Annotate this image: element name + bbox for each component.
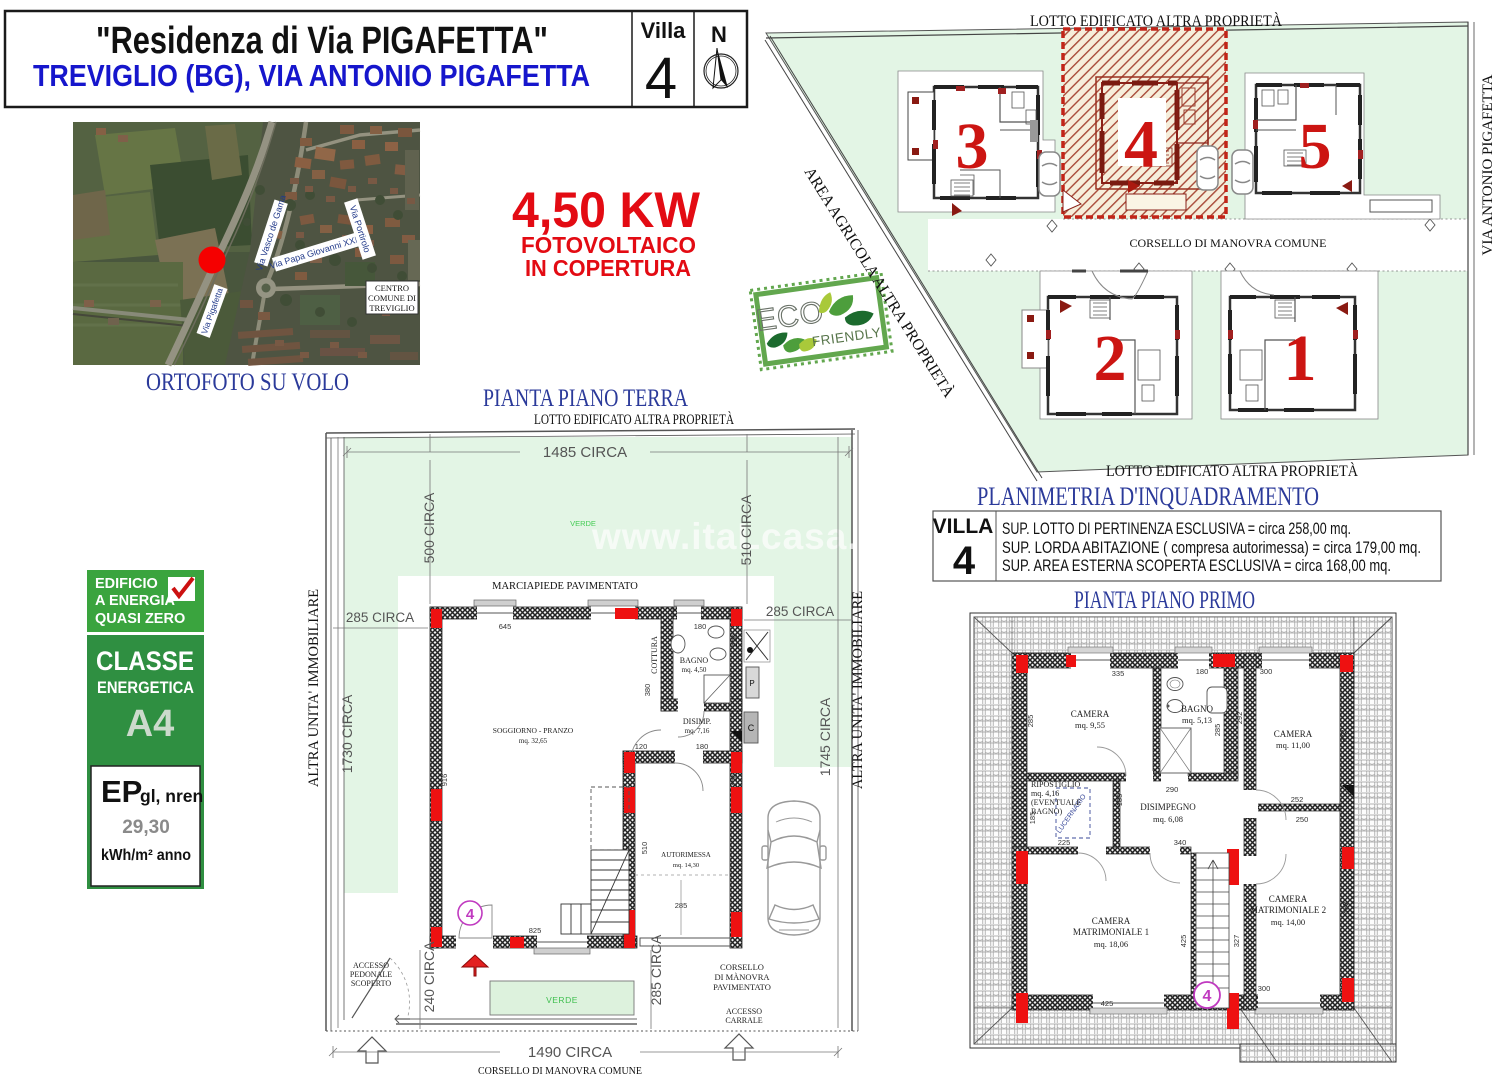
svg-text:300: 300 xyxy=(1258,984,1271,993)
svg-text:CORSELLO DI MANOVRA COMUNE: CORSELLO DI MANOVRA COMUNE xyxy=(478,1065,642,1077)
svg-text:488: 488 xyxy=(1341,902,1350,915)
svg-text:4: 4 xyxy=(466,906,475,923)
svg-text:4: 4 xyxy=(953,539,976,583)
svg-text:VERDE: VERDE xyxy=(546,995,578,1005)
svg-text:BAGNO: BAGNO xyxy=(1181,704,1214,714)
svg-text:5: 5 xyxy=(1299,110,1332,183)
svg-text:CAMERA: CAMERA xyxy=(1269,894,1308,904)
svg-text:MARCIAPIEDE PAVIMENTATO: MARCIAPIEDE PAVIMENTATO xyxy=(492,581,638,592)
svg-text:300: 300 xyxy=(1260,667,1273,676)
svg-text:510 CIRCA: 510 CIRCA xyxy=(738,494,754,565)
svg-text:380: 380 xyxy=(643,684,652,697)
svg-text:500 CIRCA: 500 CIRCA xyxy=(421,492,437,563)
svg-text:TREVIGLIO (BG), VIA ANTONIO PI: TREVIGLIO (BG), VIA ANTONIO PIGAFETTA xyxy=(33,58,590,93)
svg-text:225: 225 xyxy=(1058,838,1071,847)
svg-text:mq. 7,16: mq. 7,16 xyxy=(685,727,710,735)
svg-text:CAMERA: CAMERA xyxy=(1092,916,1131,926)
svg-text:mq. 11,00: mq. 11,00 xyxy=(1276,740,1310,750)
svg-text:1490 CIRCA: 1490 CIRCA xyxy=(528,1044,612,1061)
svg-text:180: 180 xyxy=(696,742,709,751)
svg-text:SUP. LORDA ABITAZIONE ( compre: SUP. LORDA ABITAZIONE ( compresa autorim… xyxy=(1002,538,1421,557)
svg-text:252: 252 xyxy=(1291,795,1304,804)
svg-text:4,50 KW: 4,50 KW xyxy=(512,182,701,238)
svg-text:285 CIRCA: 285 CIRCA xyxy=(346,610,414,625)
svg-text:425: 425 xyxy=(1179,935,1188,948)
svg-text:645: 645 xyxy=(499,622,512,631)
svg-text:IN COPERTURA: IN COPERTURA xyxy=(525,255,691,281)
svg-text:A4: A4 xyxy=(126,703,175,745)
svg-text:PIANTA PIANO TERRA: PIANTA PIANO TERRA xyxy=(483,385,688,412)
svg-text:mq. 9,55: mq. 9,55 xyxy=(1075,720,1105,730)
svg-text:gl, nren: gl, nren xyxy=(140,786,203,806)
svg-text:250: 250 xyxy=(1296,815,1309,824)
svg-text:EDIFICIO: EDIFICIO xyxy=(95,576,158,592)
svg-text:373: 373 xyxy=(1339,730,1348,743)
svg-text:mq. 4,50: mq. 4,50 xyxy=(682,666,707,674)
svg-text:mq. 14,00: mq. 14,00 xyxy=(1271,917,1305,927)
svg-text:MATRIMONIALE 1: MATRIMONIALE 1 xyxy=(1073,927,1149,937)
svg-text:VILLA: VILLA xyxy=(933,515,994,538)
svg-text:EP: EP xyxy=(101,774,142,809)
svg-text:185: 185 xyxy=(1115,794,1124,807)
svg-text:SOGGIORNO - PRANZO: SOGGIORNO - PRANZO xyxy=(493,726,574,735)
svg-text:RIPOSTIGLIO: RIPOSTIGLIO xyxy=(1031,780,1081,789)
svg-text:ACCESSO: ACCESSO xyxy=(353,961,389,970)
svg-text:3: 3 xyxy=(956,110,989,183)
svg-text:CLASSE: CLASSE xyxy=(96,646,194,676)
svg-text:SCOPERTO: SCOPERTO xyxy=(351,979,391,988)
svg-text:285: 285 xyxy=(1026,715,1035,728)
svg-text:1: 1 xyxy=(1284,322,1317,395)
svg-text:1745 CIRCA: 1745 CIRCA xyxy=(817,697,833,776)
svg-text:PAVIMENTATO: PAVIMENTATO xyxy=(713,982,771,992)
svg-text:COMUNE DI: COMUNE DI xyxy=(368,293,416,303)
svg-text:C: C xyxy=(748,723,755,733)
svg-text:4: 4 xyxy=(1203,988,1212,1005)
svg-text:DI MÀNOVRA: DI MÀNOVRA xyxy=(714,972,770,982)
svg-text:Villa: Villa xyxy=(641,18,687,43)
svg-text:ORTOFOTO SU VOLO: ORTOFOTO SU VOLO xyxy=(146,369,349,396)
svg-text:PEDONALE: PEDONALE xyxy=(350,970,392,979)
svg-text:A ENERGIA: A ENERGIA xyxy=(95,593,176,609)
svg-text:kWh/m² anno: kWh/m² anno xyxy=(101,847,191,864)
svg-text:4: 4 xyxy=(645,46,677,111)
svg-text:240 CIRCA: 240 CIRCA xyxy=(421,941,437,1012)
svg-text:120: 120 xyxy=(635,742,648,751)
svg-text:285: 285 xyxy=(1213,724,1222,737)
svg-text:2: 2 xyxy=(1094,322,1127,395)
svg-text:292: 292 xyxy=(1235,712,1244,725)
svg-text:185: 185 xyxy=(1028,812,1037,825)
svg-text:4: 4 xyxy=(1124,106,1158,182)
svg-text:mq. 32,65: mq. 32,65 xyxy=(519,737,548,745)
svg-text:mq. 6,08: mq. 6,08 xyxy=(1153,814,1183,824)
svg-text:LOTTO EDIFICATO ALTRA PROPRIE: LOTTO EDIFICATO ALTRA PROPRIETÀ xyxy=(534,411,734,428)
svg-text:TREVIGLIO: TREVIGLIO xyxy=(369,303,414,313)
svg-text:N: N xyxy=(711,22,727,47)
svg-text:180: 180 xyxy=(694,622,707,631)
svg-text:mq. 4,16: mq. 4,16 xyxy=(1031,789,1059,798)
svg-text:LOTTO EDIFICATO ALTRA PROPRIE: LOTTO EDIFICATO ALTRA PROPRIETÀ xyxy=(1106,461,1358,480)
svg-text:(EVENTUALE: (EVENTUALE xyxy=(1031,798,1081,807)
svg-text:SUP. LOTTO DI PERTINENZA ESCLU: SUP. LOTTO DI PERTINENZA ESCLUSIVA = cir… xyxy=(1002,519,1351,538)
svg-text:327: 327 xyxy=(1232,935,1241,948)
svg-text:29,30: 29,30 xyxy=(122,817,170,838)
svg-text:P: P xyxy=(749,679,754,688)
svg-text:335: 335 xyxy=(1112,669,1125,678)
svg-text:340: 340 xyxy=(1174,838,1187,847)
svg-text:250: 250 xyxy=(730,634,739,647)
svg-text:SUP. AREA ESTERNA SCOPERTA ESC: SUP. AREA ESTERNA SCOPERTA ESCLUSIVA = c… xyxy=(1002,556,1391,575)
svg-text:CAMERA: CAMERA xyxy=(1071,709,1110,719)
svg-text:PLANIMETRIA D'INQUADRAMENTO: PLANIMETRIA D'INQUADRAMENTO xyxy=(977,482,1319,511)
svg-text:PIANTA PIANO PRIMO: PIANTA PIANO PRIMO xyxy=(1074,587,1255,614)
svg-text:LOTTO EDIFICATO ALTRA PROPRIE: LOTTO EDIFICATO ALTRA PROPRIETÀ xyxy=(1030,11,1282,30)
svg-text:AUTORIMESSA: AUTORIMESSA xyxy=(661,851,711,859)
svg-text:ALTRA UNITA' IMMOBILIARE: ALTRA UNITA' IMMOBILIARE xyxy=(850,591,866,789)
svg-text:1730 CIRCA: 1730 CIRCA xyxy=(339,694,355,773)
svg-text:MATRIMONIALE 2: MATRIMONIALE 2 xyxy=(1250,905,1326,915)
svg-text:"Residenza di Via PIGAFETTA": "Residenza di Via PIGAFETTA" xyxy=(96,20,548,62)
svg-text:180: 180 xyxy=(1196,667,1209,676)
svg-text:COTTURA: COTTURA xyxy=(650,636,659,674)
svg-text:VIA ANTONIO PIGAFETTA: VIA ANTONIO PIGAFETTA xyxy=(1480,74,1496,255)
svg-text:825: 825 xyxy=(529,926,542,935)
svg-text:1485 CIRCA: 1485 CIRCA xyxy=(543,444,627,461)
svg-text:285 CIRCA: 285 CIRCA xyxy=(648,934,664,1005)
svg-text:BAGNO: BAGNO xyxy=(680,656,709,665)
svg-text:CENTRO: CENTRO xyxy=(375,283,409,293)
svg-text:DISIMP.: DISIMP. xyxy=(683,717,711,726)
svg-text:CAMERA: CAMERA xyxy=(1274,729,1313,739)
svg-text:CARRALE: CARRALE xyxy=(725,1016,762,1025)
svg-text:916: 916 xyxy=(440,774,449,787)
svg-text:ENERGETICA: ENERGETICA xyxy=(97,678,194,697)
svg-text:mq. 14,30: mq. 14,30 xyxy=(673,862,699,869)
svg-text:DISIMPEGNO: DISIMPEGNO xyxy=(1140,802,1196,812)
svg-text:mq. 5,13: mq. 5,13 xyxy=(1182,715,1212,725)
svg-text:CORSELLO DI MANOVRA COMUNE: CORSELLO DI MANOVRA COMUNE xyxy=(1129,236,1326,250)
svg-text:425: 425 xyxy=(1101,999,1114,1008)
svg-text:ACCESSO: ACCESSO xyxy=(726,1007,762,1016)
svg-text:mq. 18,06: mq. 18,06 xyxy=(1094,939,1128,949)
svg-text:CORSELLO: CORSELLO xyxy=(720,962,764,972)
svg-text:285 CIRCA: 285 CIRCA xyxy=(766,604,834,619)
svg-text:QUASI ZERO: QUASI ZERO xyxy=(95,611,185,627)
svg-text:120: 120 xyxy=(730,774,739,787)
svg-text:290: 290 xyxy=(1166,785,1179,794)
svg-text:510: 510 xyxy=(640,842,649,855)
svg-text:ALTRA UNITA' IMMOBILIARE: ALTRA UNITA' IMMOBILIARE xyxy=(306,589,322,787)
